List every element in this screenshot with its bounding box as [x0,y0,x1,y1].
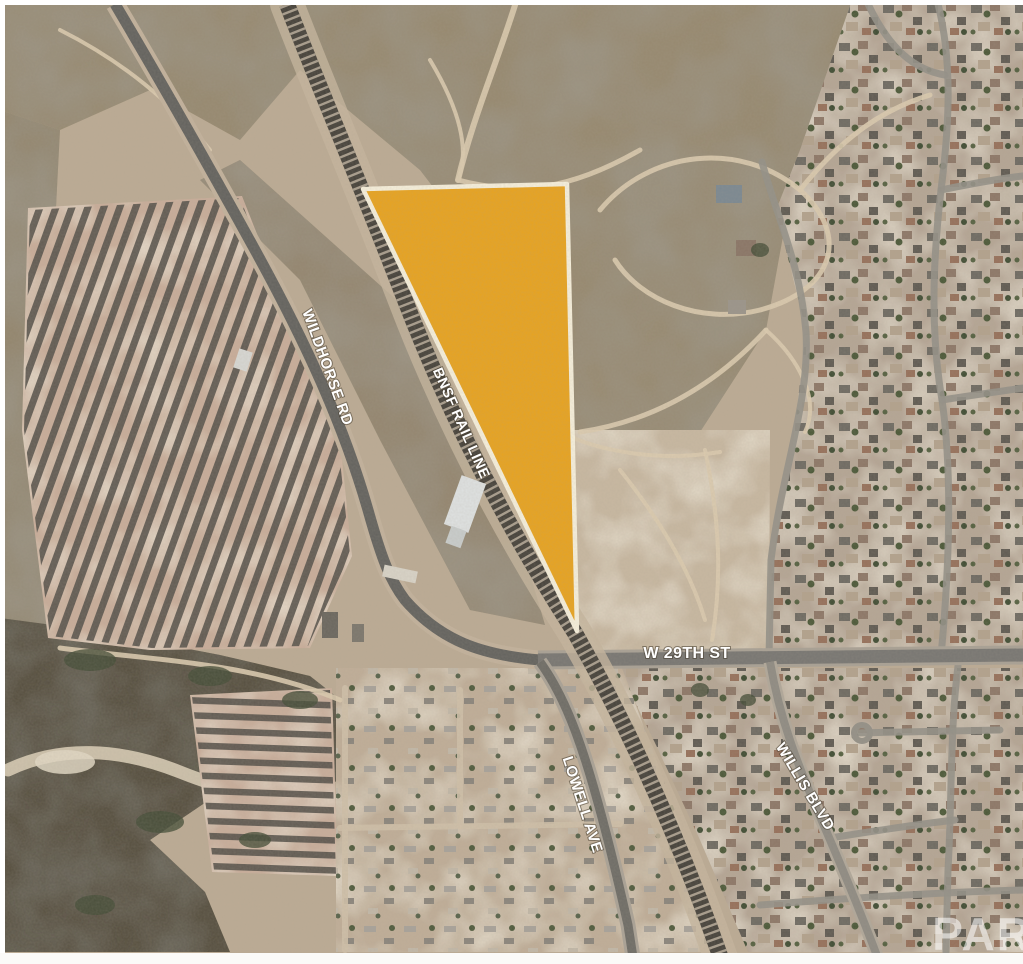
watermark: PAR [932,908,1023,960]
photo-grain [0,0,1023,964]
road-label-w-29th-st: W 29TH ST [643,645,730,662]
aerial-parcel-map: WILDHORSE RD BNSF RAIL LINE W 29TH ST LO… [0,0,1023,964]
